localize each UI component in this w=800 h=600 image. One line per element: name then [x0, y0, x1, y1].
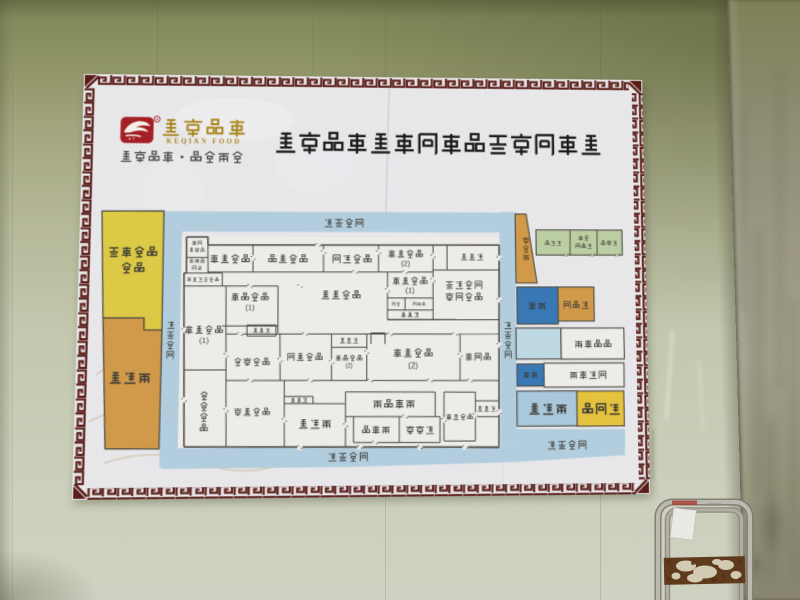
svg-text:(2): (2) — [345, 364, 352, 370]
svg-text:R: R — [156, 116, 159, 121]
svg-text:KEQIAN FOOD: KEQIAN FOOD — [166, 137, 241, 145]
svg-text:(2): (2) — [401, 259, 411, 268]
svg-text:(1): (1) — [199, 336, 209, 345]
svg-text:(2): (2) — [408, 361, 418, 370]
svg-text:(1): (1) — [245, 303, 255, 312]
svg-text:(1): (1) — [405, 286, 415, 295]
